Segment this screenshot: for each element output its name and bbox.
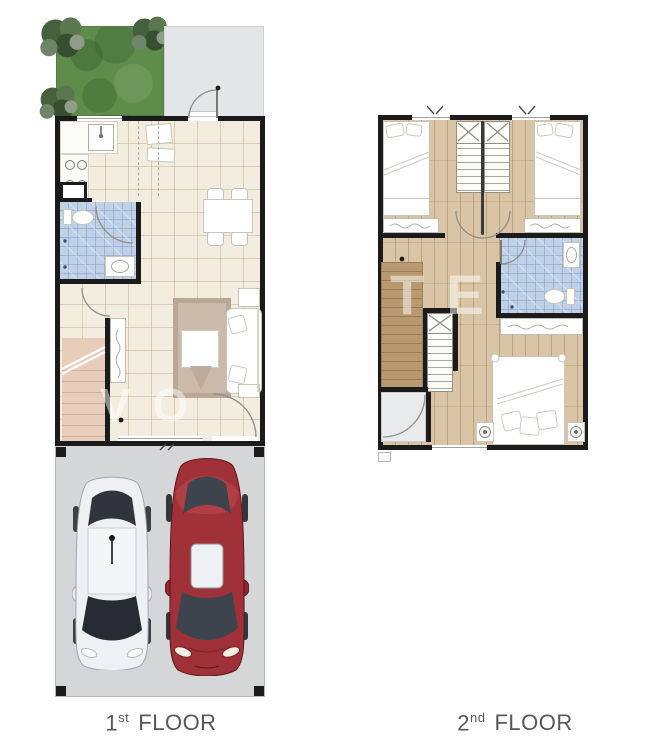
side-table (238, 288, 260, 307)
staircase-up-right (484, 121, 510, 193)
floor1-label-number: 1 (105, 710, 118, 735)
stairwell-wall (453, 313, 458, 371)
dresser-bath (500, 318, 583, 335)
bed-pillow (405, 123, 423, 137)
bed-blanket (535, 198, 580, 215)
patio (164, 26, 264, 119)
stove-burner (77, 160, 87, 170)
stair-treads (428, 333, 452, 391)
ac-unit (378, 452, 391, 462)
hall-cabinet (110, 318, 126, 383)
balcony (381, 392, 426, 442)
floor2-label-word: FLOOR (494, 710, 572, 735)
sofa-pillow (227, 364, 247, 384)
toilet-bowl (544, 289, 565, 304)
stove-burner (65, 160, 75, 170)
living-window (118, 436, 203, 441)
stair-storage (485, 122, 509, 144)
floor2-label-ordinal: nd (470, 710, 485, 725)
garage-post (254, 447, 264, 457)
floor2-label: 2ndFLOOR (440, 710, 590, 736)
bed-pillow (536, 123, 554, 137)
bathroom2-wall (496, 262, 501, 313)
counter-board (145, 123, 173, 145)
dining-table (203, 199, 253, 233)
bedroom-window (512, 115, 550, 120)
stair-landing (62, 338, 105, 368)
bedroom-wall (378, 233, 445, 238)
sink-basin (111, 260, 129, 273)
nightstand (476, 422, 494, 442)
door-threshold (188, 111, 218, 117)
floor2-label-number: 2 (457, 710, 470, 735)
tv-stand (181, 330, 219, 368)
floor1-label-ordinal: st (118, 710, 129, 725)
staircase-up-left (456, 121, 482, 193)
tree-icon (36, 12, 90, 66)
counter-board (147, 147, 176, 162)
stair-storage (428, 314, 452, 334)
floor1-label: 1stFLOOR (86, 710, 236, 736)
staircase-down (427, 313, 453, 392)
car-red (165, 452, 249, 676)
stair-treads (457, 142, 481, 192)
bathroom1-wall (60, 279, 141, 284)
toilet-tank (566, 288, 575, 305)
bathroom1-wall (136, 202, 141, 284)
stair-divider-rail (481, 121, 484, 235)
bed-pillow (536, 410, 558, 431)
dresser-left (383, 218, 439, 233)
kitchen-sink (88, 124, 114, 151)
garage-post (56, 447, 66, 457)
garage-post (254, 686, 264, 696)
dining-chair (207, 231, 224, 246)
toilet-bowl (72, 210, 94, 225)
toilet-tank (63, 209, 72, 225)
dining-chair (231, 231, 248, 246)
bed-blanket (384, 198, 429, 215)
counter-dashed-line (138, 121, 139, 196)
stair-storage (457, 122, 481, 144)
side-table (238, 384, 260, 398)
entrance1-opening (212, 436, 258, 441)
counter-dashed-line (158, 121, 159, 196)
rug-accent (190, 366, 212, 390)
hall-window (432, 445, 487, 450)
bathroom1-wall (60, 198, 92, 202)
balcony-wall (426, 392, 431, 442)
dresser-right (524, 218, 581, 233)
wardrobe-closet (381, 262, 423, 388)
stair-treads (485, 142, 509, 192)
floor1-label-word: FLOOR (138, 710, 216, 735)
floorplan-scene: VO T (0, 0, 671, 750)
nightstand (567, 422, 585, 442)
car-white (72, 470, 152, 670)
sink-basin (566, 247, 577, 263)
bedroom-window (412, 115, 450, 120)
garage-post (56, 686, 66, 696)
